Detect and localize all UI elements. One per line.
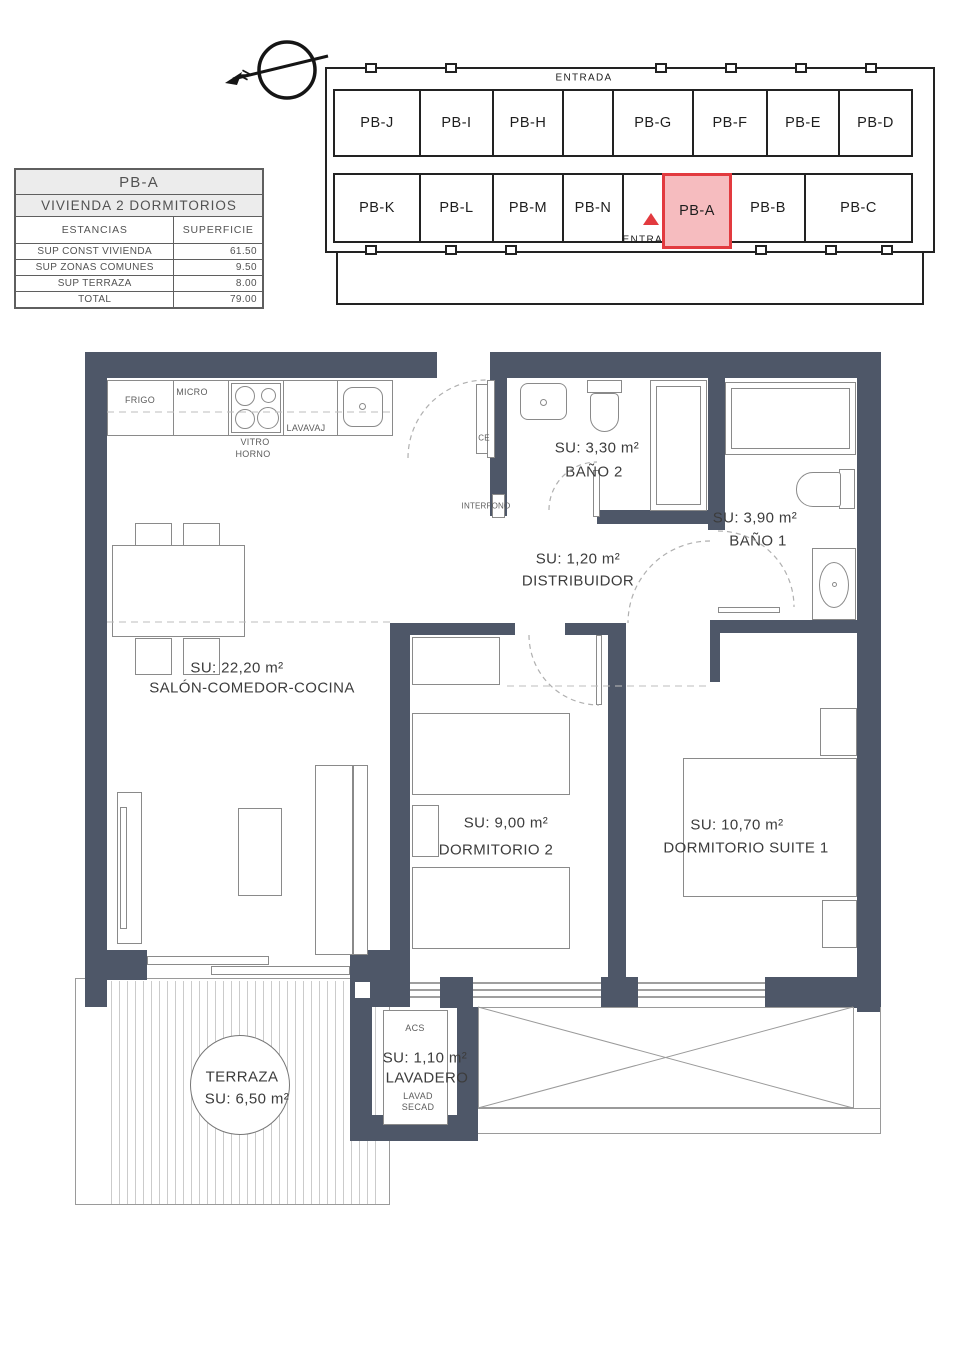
- table-row: TOTAL 79.00: [16, 291, 262, 307]
- counter-divider: [283, 380, 284, 436]
- dormitorio2-name-label: DORMITORIO 2: [439, 842, 554, 859]
- door-leaf: [596, 635, 602, 705]
- secad-label: SECAD: [402, 1102, 435, 1112]
- basin-drain: [540, 399, 547, 406]
- building-key-plan: ENTRADA PB-J PB-I PB-H PB-G PB-F PB-E PB…: [325, 63, 935, 307]
- sofa: [315, 765, 353, 955]
- unit-cell-pbf: PB-F: [692, 89, 768, 157]
- unit-cell-pbg: PB-G: [612, 89, 694, 157]
- distribuidor-area-label: SU: 1,20 m²: [536, 551, 620, 568]
- walkway-line: [478, 1133, 880, 1134]
- burner-icon: [257, 407, 279, 429]
- distribuidor-name-label: DISTRIBUIDOR: [522, 573, 634, 590]
- counter-divider: [337, 380, 338, 436]
- lavadero-name-label: LAVADERO: [386, 1070, 469, 1087]
- wall: [765, 977, 881, 1008]
- unit-cell-pbc: PB-C: [804, 173, 913, 243]
- row-label: SUP TERRAZA: [16, 276, 173, 291]
- toilet-tank: [587, 380, 622, 393]
- row-value: 8.00: [173, 276, 262, 291]
- table-row: SUP CONST VIVIENDA 61.50: [16, 243, 262, 259]
- outline-notch: [825, 245, 837, 255]
- floorplan-page: { "colors": { "wall": "#4e5768", "red": …: [0, 0, 957, 1356]
- nightstand: [412, 805, 439, 857]
- unit-cell-pbn: PB-N: [562, 173, 624, 243]
- wall: [597, 510, 725, 524]
- fridge-label: FRIGO: [125, 395, 155, 405]
- wall-vent: [355, 982, 370, 998]
- unit-cell-pbb: PB-B: [730, 173, 806, 243]
- row-label: SUP ZONAS COMUNES: [16, 260, 173, 275]
- walkway-line: [478, 1108, 880, 1109]
- outline-notch: [795, 63, 807, 73]
- wall: [350, 1007, 372, 1117]
- salon-area-label: SU: 22,20 m²: [190, 660, 283, 677]
- wall: [85, 950, 147, 980]
- terraza-name-label: TERRAZA: [206, 1069, 279, 1086]
- wall: [608, 623, 626, 1007]
- unit-title: PB-A: [16, 170, 262, 194]
- bed: [412, 713, 570, 795]
- vitro-label: VITRO: [240, 437, 269, 447]
- col-header-superficie: SUPERFICIE: [173, 217, 262, 243]
- wall: [490, 352, 881, 378]
- wall: [710, 620, 720, 682]
- row-label: TOTAL: [16, 292, 173, 307]
- shower-tray-inner: [731, 388, 850, 449]
- bano2-name-label: BAÑO 2: [565, 464, 622, 481]
- outline-notch: [445, 63, 457, 73]
- wardrobe: [412, 637, 500, 685]
- sliding-door-panel: [211, 966, 350, 975]
- nightstand: [820, 708, 857, 756]
- burner-icon: [235, 409, 255, 429]
- wall: [390, 623, 410, 1007]
- basin-drain: [832, 582, 837, 587]
- burner-icon: [261, 388, 276, 403]
- unit-cell-pbj: PB-J: [333, 89, 421, 157]
- outline-notch: [505, 245, 517, 255]
- building-lower-band: [336, 253, 924, 305]
- lavadero-area-label: SU: 1,10 m²: [383, 1050, 467, 1067]
- unit-cell-pbd: PB-D: [838, 89, 913, 157]
- dishwasher-label: LAVAVAJ: [287, 423, 326, 433]
- unit-cell-pbk: PB-K: [333, 173, 421, 243]
- suite-area-label: SU: 10,70 m²: [690, 817, 783, 834]
- suite-name-label: DORMITORIO SUITE 1: [663, 840, 828, 857]
- row-value: 9.50: [173, 260, 262, 275]
- dining-table: [112, 545, 245, 637]
- unit-cell-pbe: PB-E: [766, 89, 840, 157]
- dormitorio2-area-label: SU: 9,00 m²: [464, 815, 548, 832]
- entrance-arrow-bottom-icon: [643, 213, 659, 225]
- entrance-hall-top: [562, 89, 614, 157]
- intercom-label: INTERFONO: [462, 502, 511, 511]
- toilet-tank: [839, 469, 855, 509]
- outline-notch: [755, 245, 767, 255]
- burner-icon: [235, 386, 255, 406]
- door-swing-arc: [408, 380, 486, 458]
- outline-notch: [655, 63, 667, 73]
- bano2-area-label: SU: 3,30 m²: [555, 440, 639, 457]
- keyplan-bottom-row: PB-K PB-L PB-M PB-N PB-A PB-B PB-C: [333, 173, 913, 243]
- shower-tray-inner: [656, 386, 701, 505]
- door-swing-arc: [529, 635, 599, 705]
- bano1-name-label: BAÑO 1: [729, 533, 786, 550]
- unit-cell-pba-highlighted: PB-A: [662, 173, 732, 249]
- lavad-label: LAVAD: [403, 1091, 433, 1101]
- outline-notch: [365, 245, 377, 255]
- counter-divider: [228, 380, 229, 436]
- coffee-table: [238, 808, 282, 896]
- nightstand: [822, 900, 857, 948]
- chair: [135, 638, 172, 675]
- entry-door-leaf: [487, 380, 495, 458]
- unit-cell-pbh: PB-H: [492, 89, 564, 157]
- counter-divider: [173, 380, 174, 436]
- acs-label: ACS: [405, 1023, 424, 1033]
- table-header-row: ESTANCIAS SUPERFICIE: [16, 216, 262, 243]
- row-value: 61.50: [173, 244, 262, 259]
- wall: [85, 352, 437, 378]
- entrance-hall-bottom: [622, 173, 664, 243]
- void-area: [478, 1007, 854, 1108]
- wall: [857, 352, 881, 1012]
- wall: [710, 620, 857, 633]
- table-row: SUP ZONAS COMUNES 9.50: [16, 259, 262, 275]
- toilet-bowl: [796, 472, 841, 507]
- wall: [85, 352, 107, 1007]
- keyplan-top-row: PB-J PB-I PB-H PB-G PB-F PB-E PB-D: [333, 89, 913, 157]
- unit-cell-pbl: PB-L: [419, 173, 494, 243]
- door-swing-arc: [628, 541, 710, 623]
- wall: [708, 378, 725, 530]
- row-label: SUP CONST VIVIENDA: [16, 244, 173, 259]
- sliding-door-panel: [147, 956, 269, 965]
- wall: [440, 977, 473, 1008]
- unit-summary-table: PB-A VIVIENDA 2 DORMITORIOS ESTANCIAS SU…: [14, 168, 264, 309]
- microwave-label: MICRO: [176, 387, 208, 397]
- salon-name-label: SALÓN-COMEDOR-COCINA: [149, 680, 355, 697]
- unit-cell-pbm: PB-M: [492, 173, 564, 243]
- wall: [565, 623, 608, 635]
- wall: [390, 623, 515, 635]
- bed: [412, 867, 570, 949]
- outline-notch: [865, 63, 877, 73]
- wall: [350, 950, 392, 1007]
- outline-notch: [365, 63, 377, 73]
- walkway-line: [880, 1007, 881, 1134]
- unit-cell-pbi: PB-I: [419, 89, 494, 157]
- toilet-bowl: [590, 393, 619, 432]
- outline-notch: [445, 245, 457, 255]
- table-row: SUP TERRAZA 8.00: [16, 275, 262, 291]
- unit-subtitle: VIVIENDA 2 DORMITORIOS: [16, 194, 262, 216]
- row-value: 79.00: [173, 292, 262, 307]
- sofa-back: [353, 765, 368, 955]
- electrical-panel-label: CE: [478, 434, 490, 443]
- bano1-area-label: SU: 3,90 m²: [713, 510, 797, 527]
- door-leaf: [718, 607, 780, 613]
- entrada-label-top: ENTRADA: [556, 73, 613, 84]
- wall: [601, 977, 638, 1008]
- col-header-estancias: ESTANCIAS: [16, 217, 173, 243]
- outline-notch: [881, 245, 893, 255]
- outline-notch: [725, 63, 737, 73]
- sink-drain: [359, 403, 366, 410]
- terraza-area-label: SU: 6,50 m²: [205, 1091, 289, 1108]
- tv-screen: [120, 807, 127, 929]
- oven-label: HORNO: [236, 449, 271, 459]
- apartment-floor-plan: FRIGO MICRO LAVAVAJ VITRO HORNO CE INTER…: [85, 350, 905, 1210]
